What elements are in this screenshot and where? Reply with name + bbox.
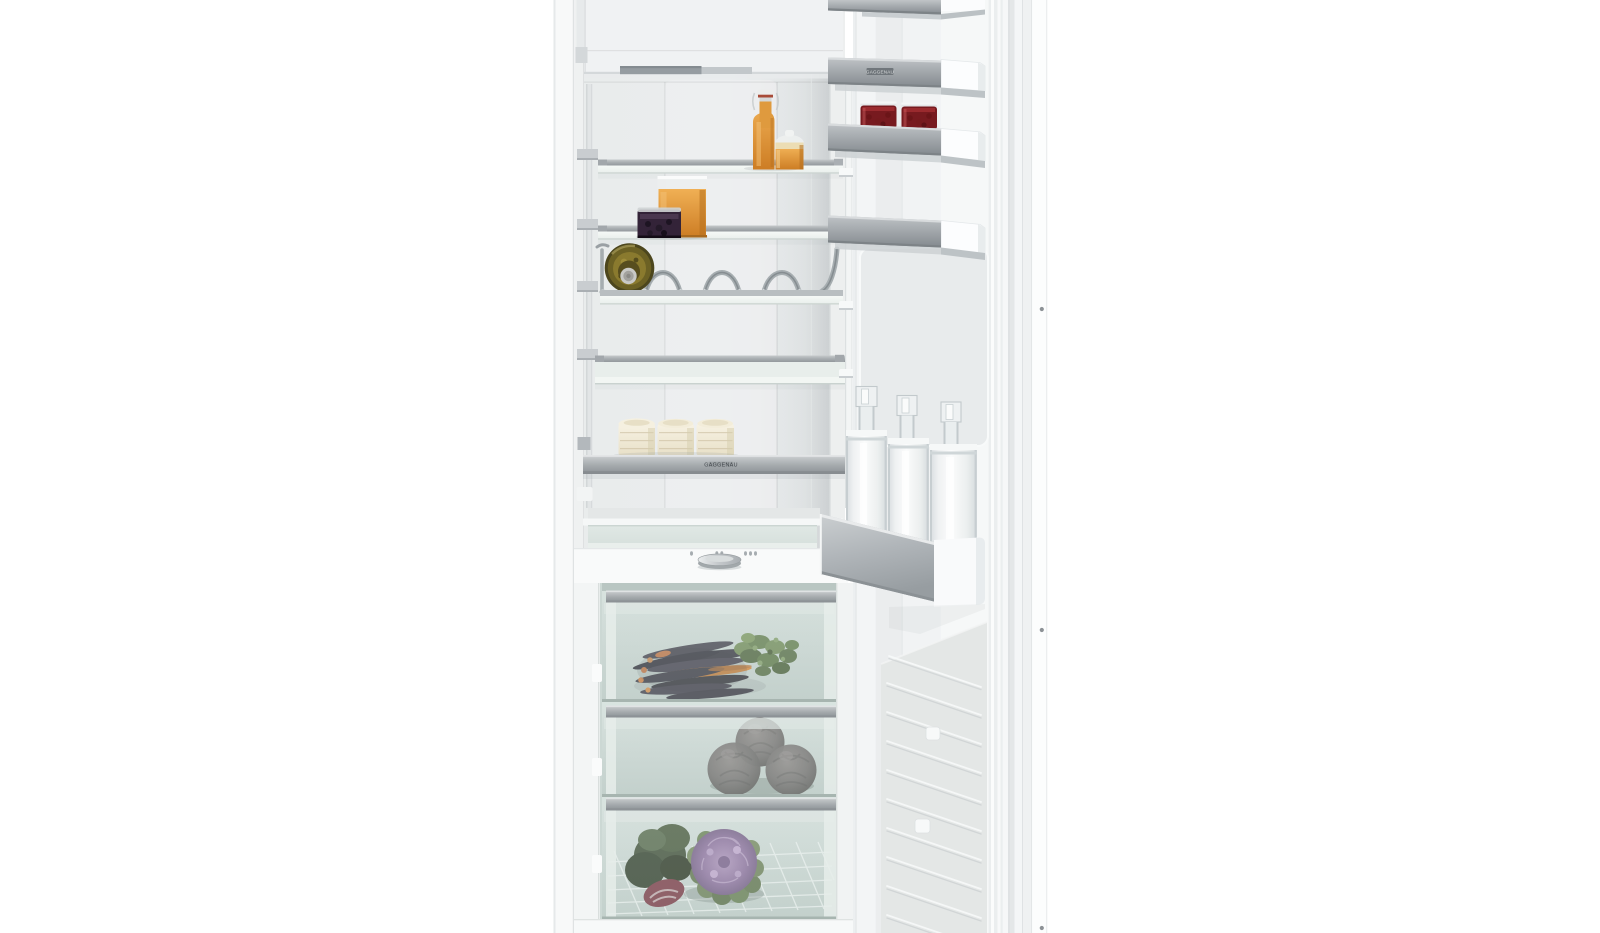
svg-text:GAGGENAU: GAGGENAU	[866, 70, 894, 75]
svg-text:GAGGENAU: GAGGENAU	[704, 462, 738, 468]
